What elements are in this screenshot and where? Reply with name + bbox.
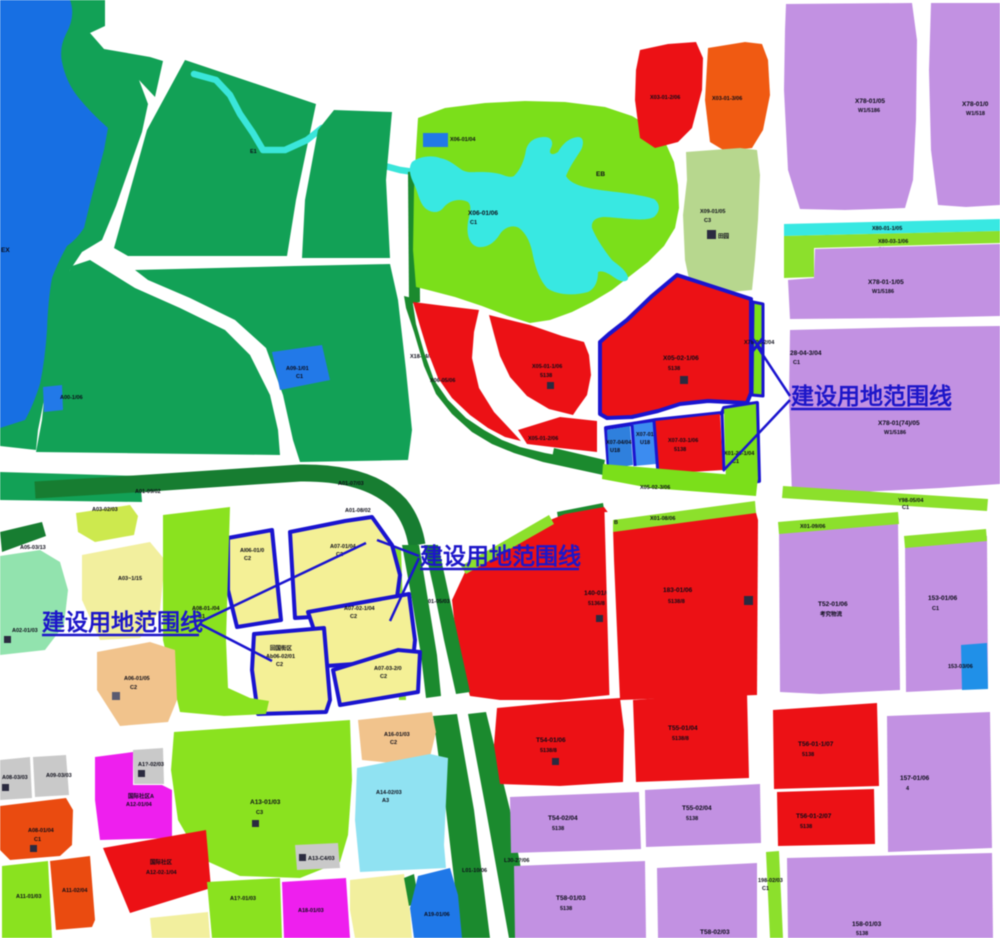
svg-text:L01-10/06: L01-10/06 [462,868,487,874]
svg-text:X01-08/06: X01-08/06 [650,516,675,522]
svg-text:A11-02/04: A11-02/04 [62,888,88,894]
svg-text:C1: C1 [932,606,939,612]
svg-text:W1/518: W1/518 [966,111,985,117]
svg-text:5138: 5138 [552,826,564,832]
svg-text:C1: C1 [762,886,769,892]
svg-text:T58-01/03: T58-01/03 [556,895,586,902]
svg-text:建设用地范围线: 建设用地范围线 [42,609,203,635]
svg-text:建设用地范围线: 建设用地范围线 [420,543,581,569]
svg-text:W1/5186: W1/5186 [884,430,906,436]
svg-text:T56-01-1/07: T56-01-1/07 [798,741,834,748]
svg-text:A01-08/02: A01-08/02 [345,508,371,514]
svg-text:5138: 5138 [668,366,680,372]
svg-text:C1: C1 [902,505,909,511]
svg-text:153-01/06: 153-01/06 [928,595,958,602]
svg-text:A18-01/03: A18-01/03 [298,908,324,914]
svg-text:X05-02-3/06: X05-02-3/06 [640,485,670,491]
svg-text:T55-01/04: T55-01/04 [668,725,698,732]
svg-text:U18: U18 [610,448,620,454]
svg-text:X06-05/06: X06-05/06 [430,378,455,384]
svg-text:198-02/03: 198-02/03 [758,878,783,884]
svg-text:考究物流: 考究物流 [820,610,843,618]
svg-text:5138: 5138 [674,447,686,453]
svg-text:A13-01/03: A13-01/03 [250,799,281,806]
svg-text:5138: 5138 [540,373,552,379]
svg-text:C1: C1 [470,220,477,226]
svg-text:AI06-01/0: AI06-01/0 [240,548,264,554]
svg-text:5138/8: 5138/8 [668,599,685,605]
svg-text:X78-01-1/05: X78-01-1/05 [868,279,904,286]
svg-text:A13-C4/03: A13-C4/03 [308,856,335,862]
svg-text:T56-01-2/07: T56-01-2/07 [796,813,832,820]
svg-text:X78-01/05: X78-01/05 [855,98,885,105]
svg-text:L30-2?/06: L30-2?/06 [504,858,529,864]
svg-text:C2: C2 [350,614,357,620]
svg-text:C1: C1 [296,374,303,380]
svg-text:5138/8: 5138/8 [672,736,689,742]
svg-text:A3: A3 [382,798,389,804]
svg-text:A12-01/04: A12-01/04 [126,802,153,808]
svg-text:A14-02/03: A14-02/03 [376,790,402,796]
svg-text:EX: EX [1,247,10,254]
svg-text:X06-01/06: X06-01/06 [468,210,498,217]
svg-text:C1: C1 [793,360,800,366]
svg-text:W1/5186: W1/5186 [872,289,894,295]
svg-text:X07-04/04: X07-04/04 [606,440,632,446]
svg-text:A1?-01/03: A1?-01/03 [230,896,256,902]
svg-text:A08-03/03: A08-03/03 [2,775,28,781]
svg-text:5138: 5138 [856,931,868,937]
svg-text:A16-01/03: A16-01/03 [384,732,410,738]
svg-text:5138: 5138 [800,824,812,830]
svg-text:5138/8: 5138/8 [540,748,557,754]
svg-text:T55-02/04: T55-02/04 [682,805,712,812]
svg-text:X78-01/0: X78-01/0 [962,101,989,108]
svg-text:A07-03-2/0: A07-03-2/0 [374,666,402,672]
svg-text:5138: 5138 [686,816,698,822]
svg-text:X78-01(74)/05: X78-01(74)/05 [878,420,920,427]
svg-text:A09-03/03: A09-03/03 [46,773,72,779]
svg-text:A01-09/02: A01-09/02 [135,489,161,495]
svg-text:183-01/06: 183-01/06 [663,587,693,594]
svg-text:C2: C2 [244,556,251,562]
svg-text:Y98-05/04: Y98-05/04 [898,498,924,504]
svg-text:X80-01-1/05: X80-01-1/05 [872,226,902,232]
svg-text:A00-1/06: A00-1/06 [60,395,83,401]
svg-text:C2: C2 [390,740,397,746]
svg-text:T52-01/06: T52-01/06 [818,601,848,608]
svg-text:A11-01/03: A11-01/03 [16,894,41,900]
svg-text:28-04-3/04: 28-04-3/04 [790,350,822,357]
svg-text:X01-09/06: X01-09/06 [800,524,825,530]
svg-text:国际社区: 国际社区 [150,858,173,866]
svg-text:C3: C3 [256,810,263,816]
svg-text:国际社区A: 国际社区A [128,792,154,800]
svg-text:X03-01-3/06: X03-01-3/06 [712,96,742,102]
svg-text:T58-02/03: T58-02/03 [700,929,730,936]
svg-text:X09-01/05: X09-01/05 [700,209,725,215]
svg-text:A03-02/03: A03-02/03 [92,507,118,513]
svg-text:5136/8: 5136/8 [588,601,605,607]
svg-text:U18: U18 [640,440,650,446]
svg-text:A1?-02/03: A1?-02/03 [138,762,164,768]
svg-text:A02-01/03: A02-01/03 [12,628,38,634]
svg-text:田园: 田园 [718,232,730,240]
svg-text:C2: C2 [276,662,283,668]
svg-text:B: B [614,520,618,526]
svg-text:C3: C3 [704,218,711,224]
svg-text:A07-02-1/04: A07-02-1/04 [344,606,376,612]
svg-text:A09-1/01: A09-1/01 [286,366,309,372]
svg-text:158-01/03: 158-01/03 [852,921,882,928]
svg-text:C2: C2 [380,674,387,680]
svg-text:X03-01-2/06: X03-01-2/06 [650,95,680,101]
svg-text:X07-03-1/06: X07-03-1/06 [668,438,698,444]
svg-text:153-03/06: 153-03/06 [948,664,973,670]
svg-text:A01-07/03: A01-07/03 [338,481,364,487]
svg-text:X05-01-1/06: X05-01-1/06 [532,364,562,370]
svg-text:A19-01/06: A19-01/06 [424,912,450,918]
svg-text:A06-01/05: A06-01/05 [124,676,150,682]
svg-text:5138: 5138 [802,752,814,758]
svg-text:C1: C1 [34,837,41,843]
svg-text:T54-01/06: T54-01/06 [536,737,566,744]
svg-text:A12-02-1/04: A12-02-1/04 [146,870,178,876]
svg-text:5138: 5138 [560,906,572,912]
svg-text:回国街区: 回国街区 [270,644,293,652]
svg-text:X80-03-1/06: X80-03-1/06 [878,239,908,245]
svg-text:X05-01-2/06: X05-01-2/06 [528,436,558,442]
svg-text:X05-02-1/06: X05-02-1/06 [663,355,699,362]
svg-text:01-05/03: 01-05/03 [428,599,450,605]
svg-text:A08-01/04: A08-01/04 [28,828,55,834]
svg-text:157-01/06: 157-01/06 [900,775,930,782]
svg-text:A03~1/15: A03~1/15 [118,576,142,582]
svg-text:EB: EB [596,171,605,178]
svg-text:E1: E1 [250,149,257,155]
svg-text:A05-03/13: A05-03/13 [20,545,46,551]
svg-text:W1/5186: W1/5186 [858,108,880,114]
svg-text:C2: C2 [130,685,137,691]
svg-text:X06-01/04: X06-01/04 [450,137,476,143]
svg-text:建设用地范围线: 建设用地范围线 [791,383,952,409]
svg-text:T54-02/04: T54-02/04 [548,815,578,822]
